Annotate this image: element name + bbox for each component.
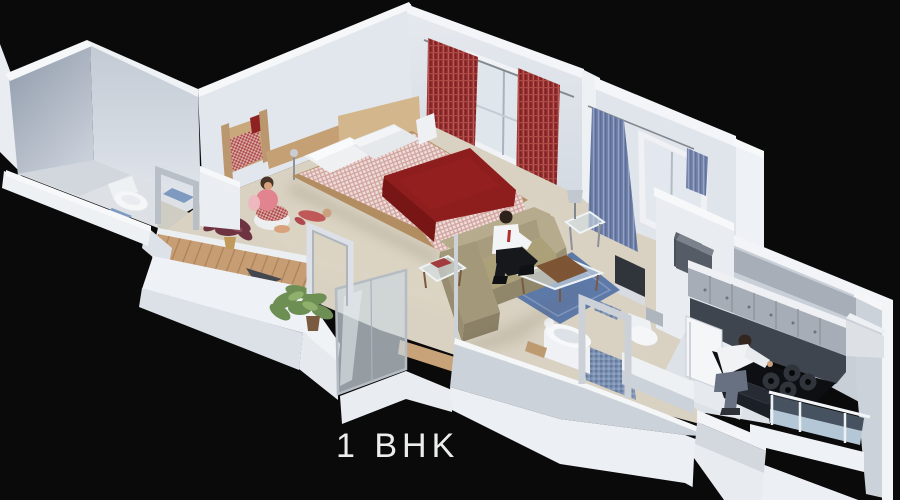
svg-text:1 BHK: 1 BHK (336, 427, 459, 465)
